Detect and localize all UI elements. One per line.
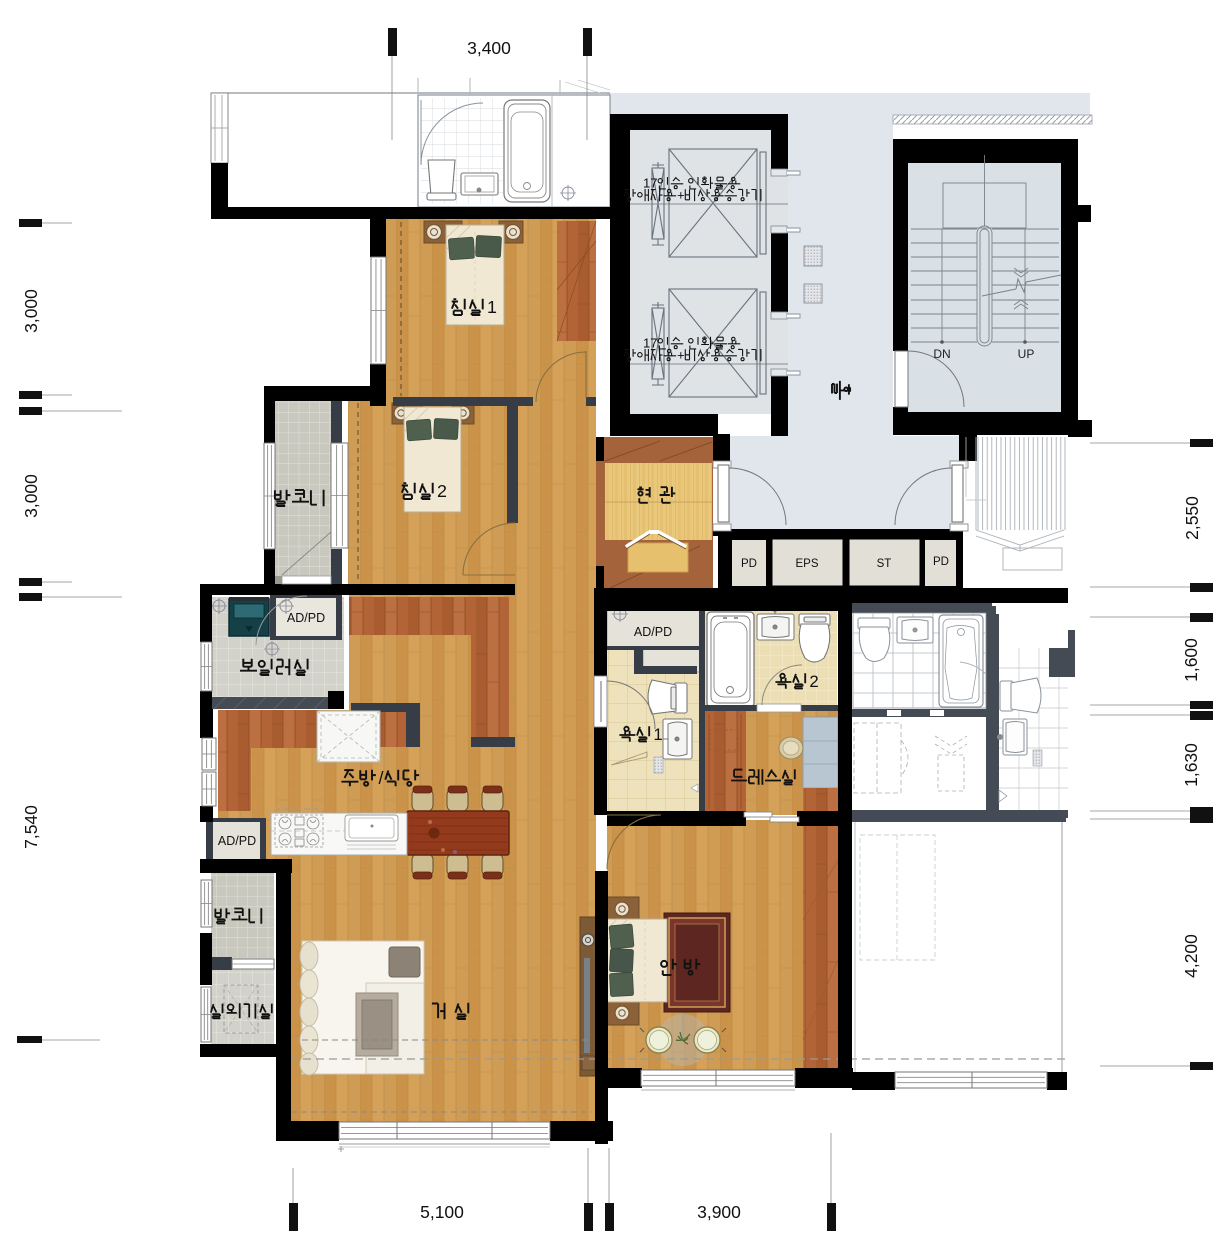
svg-text:1,600: 1,600 <box>1181 638 1201 682</box>
svg-text:+: + <box>677 348 685 363</box>
svg-text:1: 1 <box>487 297 497 317</box>
svg-text:1: 1 <box>653 725 662 744</box>
svg-text:3,000: 3,000 <box>21 474 41 518</box>
svg-text:1: 1 <box>643 336 650 351</box>
svg-text:4,200: 4,200 <box>1181 934 1201 978</box>
svg-text:/: / <box>379 768 384 788</box>
svg-text:ST: ST <box>877 558 892 570</box>
svg-text:3,400: 3,400 <box>467 38 511 58</box>
svg-text:+: + <box>677 188 685 203</box>
svg-text:7: 7 <box>650 176 657 191</box>
svg-text:2: 2 <box>809 672 818 691</box>
svg-text:UP: UP <box>1018 347 1035 361</box>
svg-text:3,000: 3,000 <box>21 289 41 333</box>
svg-text:PD: PD <box>933 556 949 568</box>
svg-text:EPS: EPS <box>795 558 818 570</box>
svg-text:PD: PD <box>741 558 757 570</box>
svg-text:1: 1 <box>643 176 650 191</box>
svg-text:1,630: 1,630 <box>1181 743 1201 787</box>
svg-text:7,540: 7,540 <box>21 805 41 849</box>
svg-text:2,550: 2,550 <box>1182 496 1202 540</box>
svg-text:5,100: 5,100 <box>420 1202 464 1222</box>
svg-text:3,900: 3,900 <box>697 1202 741 1222</box>
svg-text:AD/PD: AD/PD <box>287 611 325 625</box>
svg-text:2: 2 <box>437 481 447 501</box>
svg-text:7: 7 <box>650 336 657 351</box>
svg-text:AD/PD: AD/PD <box>218 834 256 848</box>
svg-text:DN: DN <box>933 347 950 361</box>
svg-text:AD/PD: AD/PD <box>634 625 672 639</box>
